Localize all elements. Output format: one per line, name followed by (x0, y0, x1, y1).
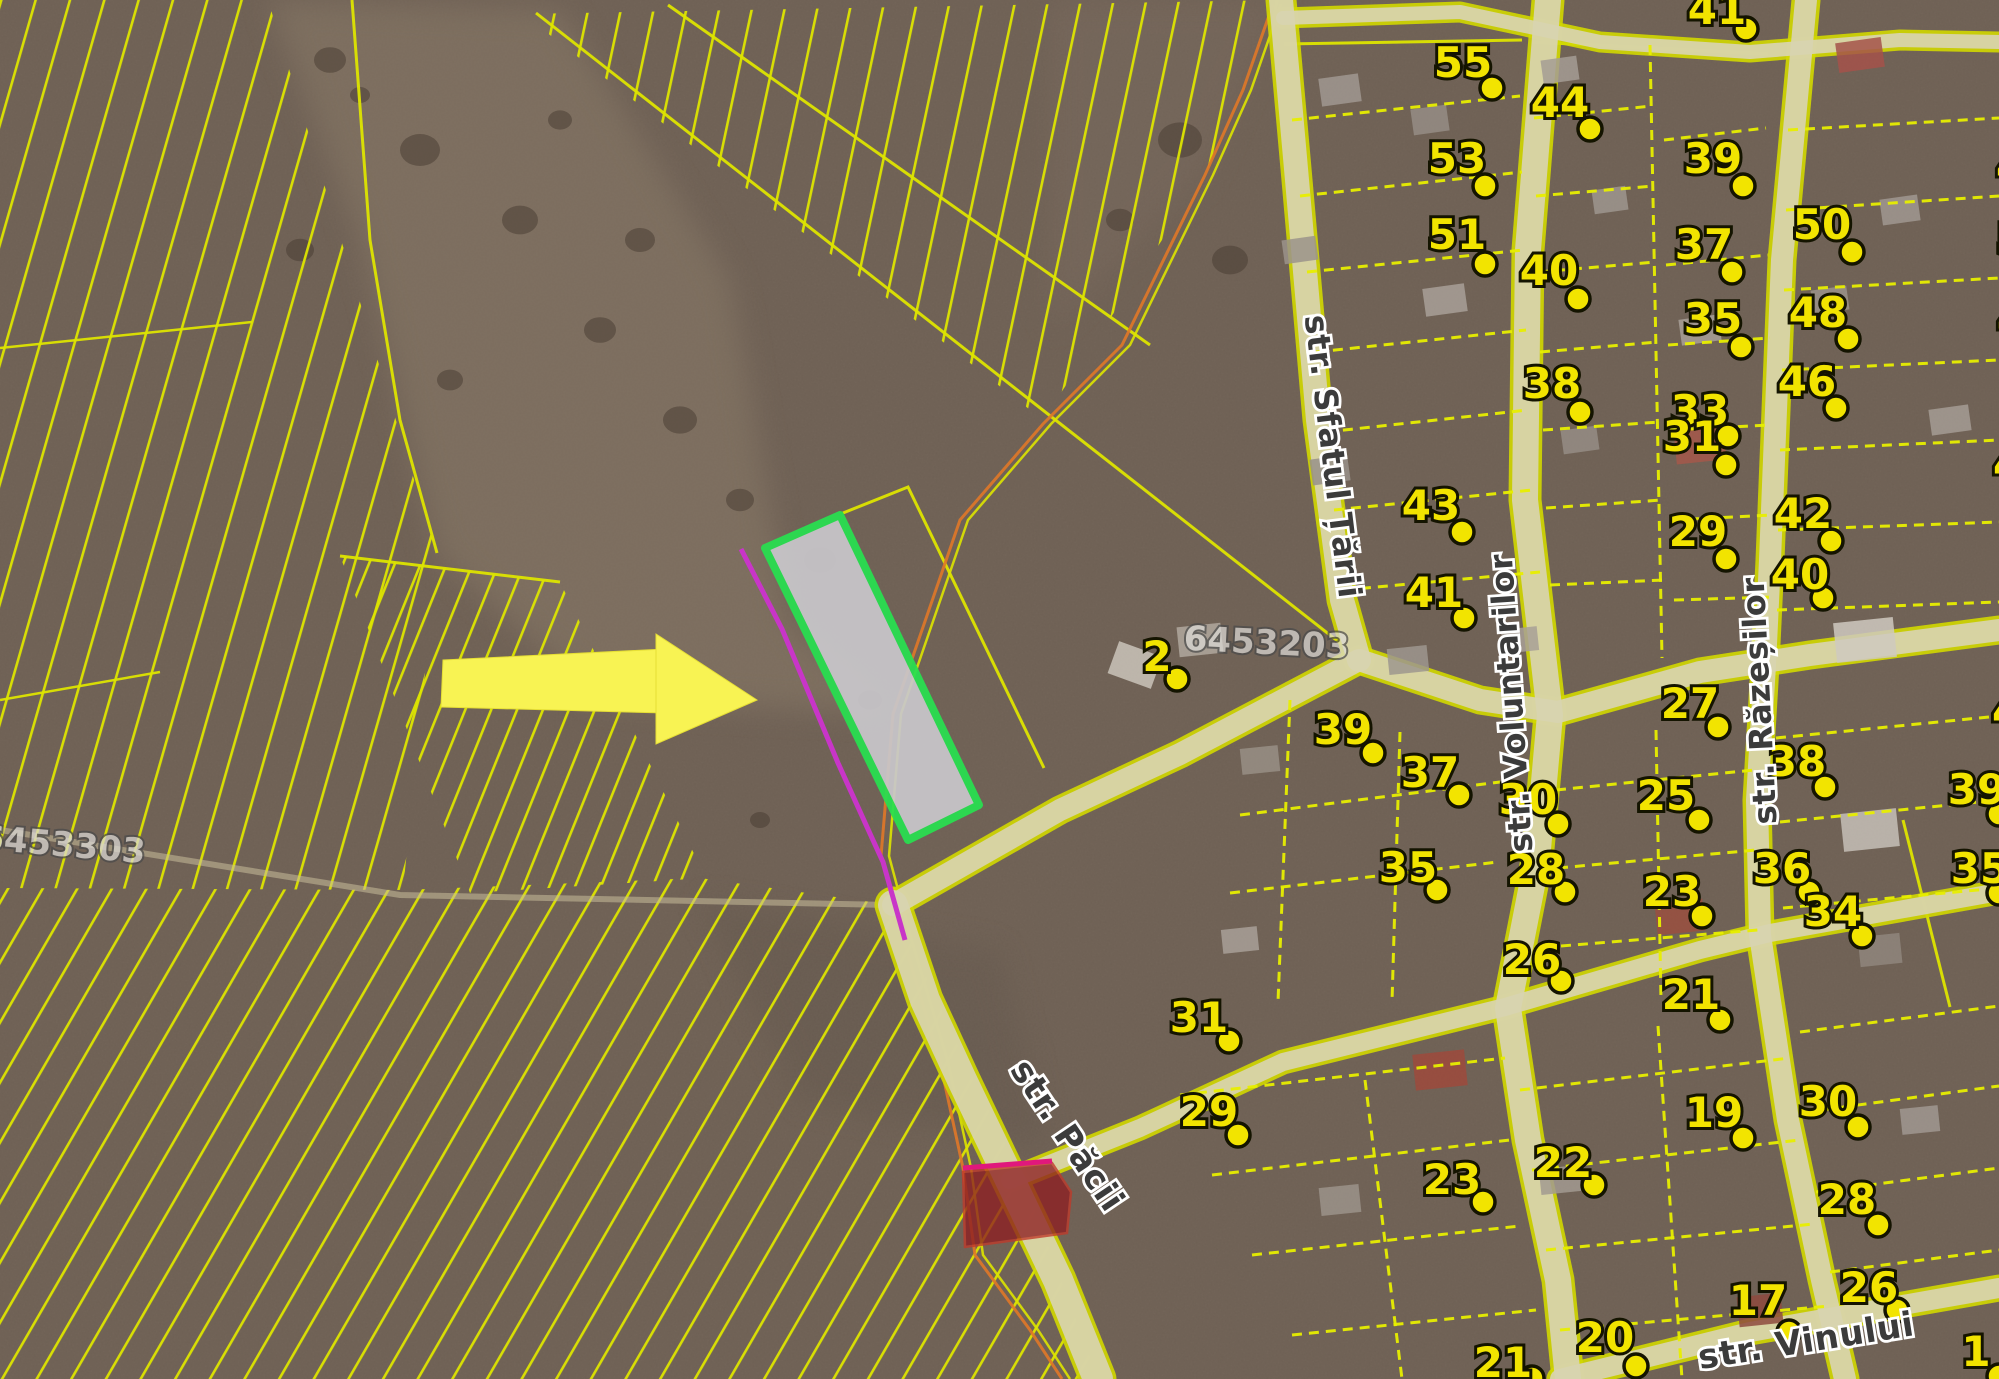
house-number-partial: 4 (1992, 687, 1999, 736)
map-canvas[interactable]: 6453303645320355444153395140375035483833… (0, 0, 1999, 1379)
house-number: 41 (1688, 0, 1746, 34)
house-number: 37 (1401, 748, 1459, 797)
house-number: 1 (1961, 1327, 1990, 1376)
vegetation-blob (625, 228, 655, 252)
house-number: 26 (1503, 935, 1561, 984)
house-number: 42 (1774, 489, 1832, 538)
building-roof (1422, 283, 1467, 317)
house-number: 39 (1684, 134, 1742, 183)
house-number: 35 (1951, 844, 1999, 893)
arrow-shaft (441, 649, 665, 713)
building-roof (1240, 745, 1281, 775)
vegetation-blob (548, 110, 572, 129)
house-number: 44 (1531, 78, 1589, 127)
house-number: 21 (1662, 970, 1720, 1019)
satellite-cadastral-map[interactable]: 6453303645320355444153395140375035483833… (0, 0, 1999, 1379)
vegetation-blob (400, 134, 440, 166)
building-roof (1879, 194, 1920, 225)
vegetation-blob (437, 370, 463, 391)
building-roof (1221, 926, 1259, 954)
house-number: 40 (1520, 246, 1578, 295)
building-roof (1281, 236, 1318, 264)
vegetation-blob (1212, 246, 1248, 275)
house-number: 29 (1180, 1087, 1238, 1136)
house-number: 2 (1142, 632, 1171, 681)
vegetation-blob (584, 317, 616, 343)
house-number: 22 (1534, 1138, 1592, 1187)
house-number: 28 (1818, 1175, 1876, 1224)
house-number: 17 (1729, 1276, 1787, 1325)
red-parcel (963, 1163, 1071, 1247)
house-number: 55 (1434, 38, 1492, 87)
house-number: 20 (1576, 1313, 1634, 1362)
house-number: 21 (1474, 1338, 1532, 1379)
house-number: 37 (1675, 220, 1733, 269)
building-roof (1412, 1049, 1467, 1090)
house-number: 43 (1402, 481, 1460, 530)
house-number: 40 (1771, 550, 1829, 599)
house-number: 19 (1685, 1088, 1743, 1137)
house-number: 26 (1840, 1263, 1898, 1312)
building-roof (1318, 73, 1362, 106)
house-number-partial: 4 (1993, 440, 1999, 489)
vegetation-blob (663, 406, 697, 433)
house-number: 41 (1405, 568, 1463, 617)
building-roof (1833, 617, 1897, 663)
building-roof (1835, 37, 1885, 73)
building-roof (1387, 645, 1429, 675)
house-number: 35 (1379, 843, 1437, 892)
house-number: 39 (1948, 765, 1999, 814)
vegetation-blob (314, 47, 346, 73)
house-number: 35 (1684, 294, 1742, 343)
house-number: 50 (1793, 200, 1851, 249)
house-number: 27 (1661, 679, 1719, 728)
vegetation-blob (750, 812, 770, 828)
building-roof (1928, 404, 1971, 435)
house-number: 53 (1428, 134, 1486, 183)
house-number: 34 (1804, 887, 1862, 936)
house-number: 39 (1314, 705, 1372, 754)
house-number: 46 (1778, 357, 1836, 406)
building-roof (1561, 426, 1600, 455)
building-roof (1410, 105, 1449, 136)
house-number: 51 (1428, 210, 1486, 259)
house-number: 25 (1637, 771, 1695, 820)
building-roof (1319, 1184, 1362, 1216)
house-number: 30 (1799, 1077, 1857, 1126)
house-number: 29 (1669, 507, 1727, 556)
house-number: 38 (1523, 359, 1581, 408)
building-roof (1900, 1105, 1941, 1135)
house-number: 36 (1753, 844, 1811, 893)
house-number: 23 (1643, 867, 1701, 916)
house-number: 31 (1663, 412, 1721, 461)
house-number: 31 (1170, 993, 1228, 1042)
house-number: 23 (1423, 1155, 1481, 1204)
vegetation-blob (502, 206, 538, 235)
vegetation-blob (726, 489, 754, 511)
house-number: 48 (1789, 288, 1847, 337)
